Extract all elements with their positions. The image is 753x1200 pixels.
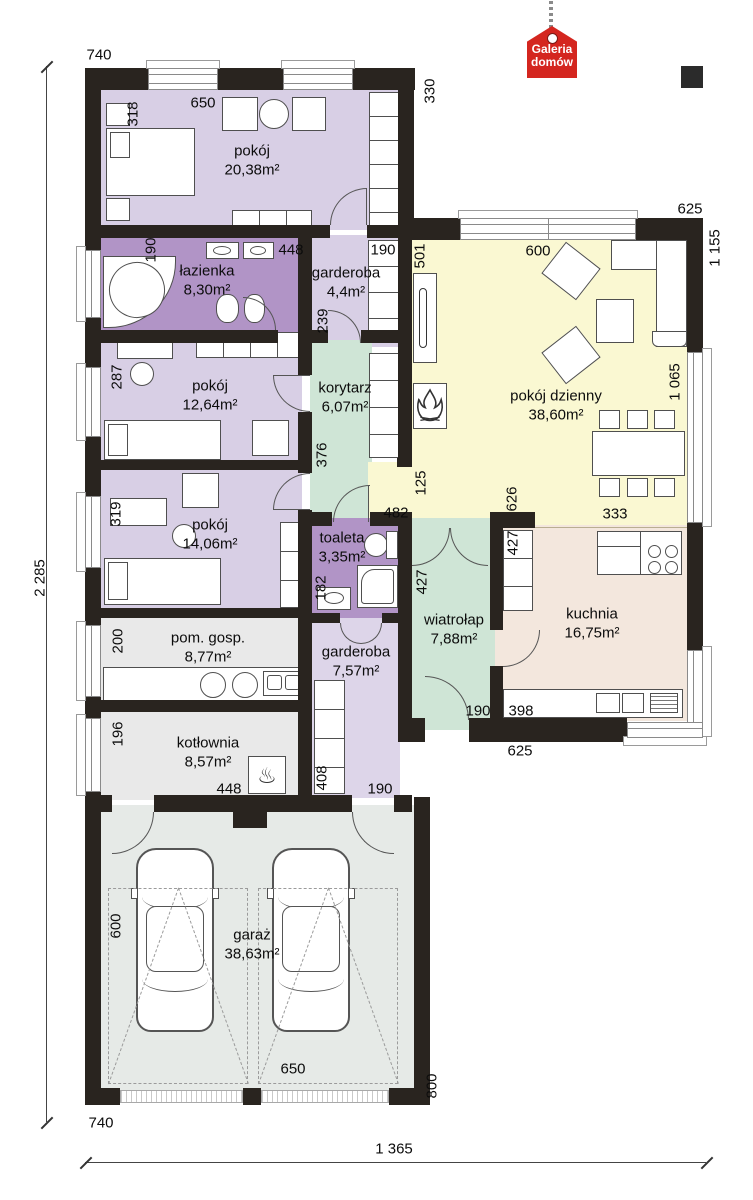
room-label-toaleta: toaleta 3,35m²: [319, 529, 366, 567]
dimension-tick: [41, 1117, 54, 1130]
wall-segment: [101, 330, 278, 343]
washbasin-bowl: [213, 246, 231, 255]
dim-label: 239: [315, 308, 332, 333]
wall-segment: [298, 412, 312, 460]
dim-label: 740: [88, 1115, 113, 1132]
dim-label: 408: [314, 765, 331, 790]
room-area: 8,57m²: [177, 753, 240, 772]
wall-segment: [367, 225, 398, 238]
room-name: pokój: [182, 516, 237, 535]
room-label-pokoj3: pokój 14,06m²: [182, 516, 237, 554]
room-label-pom-gosp: pom. gosp. 8,77m²: [171, 629, 245, 667]
room-area: 38,60m²: [510, 406, 602, 425]
wall-segment: [85, 700, 312, 712]
dim-label: 501: [412, 243, 429, 268]
dining-chair: [654, 410, 675, 429]
logo-hole-icon: [547, 33, 558, 44]
dining-chair: [654, 478, 675, 497]
chair: [130, 362, 154, 386]
window: [85, 367, 101, 437]
wall-segment: [382, 613, 398, 623]
wall-segment: [398, 68, 414, 240]
room-label-pokoj-dzienny: pokój dzienny 38,60m²: [510, 387, 602, 425]
dim-label: 1 155: [707, 229, 724, 267]
wardrobe: [369, 353, 400, 458]
toilet: [364, 533, 388, 557]
counter-divider: [597, 546, 641, 547]
dim-label: 427: [505, 530, 522, 555]
wall-segment: [398, 240, 412, 458]
dining-chair: [599, 478, 620, 497]
chimney-block: [233, 812, 267, 828]
room-area: 6,07m²: [318, 398, 371, 417]
wall-segment: [298, 618, 312, 797]
room-name: wiatrołap: [424, 611, 484, 630]
armchair: [292, 97, 326, 131]
bed-pillow: [110, 132, 130, 158]
dining-chair: [627, 410, 648, 429]
washing-machine: [200, 672, 226, 698]
plan-marker-square: [681, 66, 703, 88]
room-name: garderoba: [312, 264, 380, 283]
room-name: pokój dzienny: [510, 387, 602, 406]
room-label-garaz: garaż 38,63m²: [224, 926, 279, 964]
dim-label: 650: [280, 1061, 305, 1078]
garage-door: [120, 1090, 243, 1103]
dim-label: 398: [508, 703, 533, 720]
dim-label: 190: [370, 242, 395, 259]
dim-label: 625: [677, 201, 702, 218]
wall-segment: [154, 795, 352, 812]
door-leaf: [366, 188, 367, 225]
wall-segment: [85, 68, 101, 1105]
dim-label: 330: [422, 78, 439, 103]
wall-segment: [490, 666, 503, 718]
room-area: 38,63m²: [224, 945, 279, 964]
wall-segment: [397, 458, 412, 467]
dimension-tick: [701, 1157, 714, 1170]
wall-segment: [490, 523, 503, 630]
dim-label: 318: [125, 101, 142, 126]
dim-label: 196: [110, 721, 127, 746]
dimension-tick: [80, 1157, 93, 1170]
room-label-kuchnia: kuchnia 16,75m²: [564, 605, 619, 643]
dimension-tick: [41, 61, 54, 74]
wall-segment: [414, 797, 430, 1105]
bed-pillow: [108, 562, 128, 600]
stove-burner: [665, 561, 678, 574]
floor-plan-canvas: ♨: [0, 0, 753, 1200]
dim-label: 190: [367, 781, 392, 798]
room-area: 20,38m²: [224, 161, 279, 180]
dim-label: 625: [507, 743, 532, 760]
room-label-lazienka: łazienka 8,30m²: [179, 262, 234, 300]
kitchen-sink: [596, 693, 620, 713]
armchair: [252, 420, 289, 456]
dim-label: 319: [108, 501, 125, 526]
dining-chair: [627, 478, 648, 497]
room-label-pokoj2: pokój 12,64m²: [182, 377, 237, 415]
logo-chain: [549, 0, 553, 28]
room-area: 12,64m²: [182, 396, 237, 415]
wall-segment: [394, 795, 412, 812]
tv-icon: [419, 288, 427, 348]
room-name: garaż: [224, 926, 279, 945]
window: [148, 68, 218, 90]
dining-chair: [599, 410, 620, 429]
room-label-garderoba1: garderoba 4,4m²: [312, 264, 380, 302]
dim-label: 200: [110, 628, 127, 653]
floor-divider-line: [533, 527, 687, 528]
room-name: kotłownia: [177, 734, 240, 753]
washing-machine: [232, 672, 258, 698]
wall-segment: [312, 613, 340, 623]
nightstand: [106, 198, 130, 221]
room-label-garderoba2: garderoba 7,57m²: [322, 643, 390, 681]
room-area: 7,57m²: [322, 662, 390, 681]
boiler: ♨: [248, 756, 286, 794]
room-name: pokój: [182, 377, 237, 396]
bed-pillow: [108, 424, 128, 456]
room-area: 8,30m²: [179, 281, 234, 300]
window-sill: [702, 646, 712, 737]
window-mullion: [548, 218, 549, 240]
dim-label: 333: [602, 506, 627, 523]
dim-label: 427: [414, 569, 431, 594]
garage-door: [261, 1090, 389, 1103]
wall-segment: [101, 460, 312, 470]
dim-label: 287: [109, 364, 126, 389]
sofa-armrest: [652, 331, 687, 347]
room-area: 7,88m²: [424, 630, 484, 649]
dim-label: 2 285: [32, 559, 49, 597]
room-label-kotlownia: kotłownia 8,57m²: [177, 734, 240, 772]
dim-label: 740: [86, 47, 111, 64]
door-leaf: [273, 509, 310, 510]
dim-label: 800: [424, 1073, 441, 1098]
dim-label: 125: [413, 470, 430, 495]
brand-logo-text: domów: [527, 56, 577, 69]
room-name: pom. gosp.: [171, 629, 245, 648]
wall-segment: [101, 608, 312, 618]
stove-burner: [648, 561, 661, 574]
room-label-korytarz: korytarz 6,07m²: [318, 379, 371, 417]
dim-label: 190: [465, 703, 490, 720]
dim-label: 190: [143, 237, 160, 262]
garage-door-swing-zone: [108, 888, 248, 1084]
room-area: 3,35m²: [319, 548, 366, 567]
room-name: korytarz: [318, 379, 371, 398]
room-area: 4,4m²: [312, 283, 380, 302]
room-area: 14,06m²: [182, 535, 237, 554]
wall-segment: [243, 1088, 261, 1105]
window: [687, 352, 703, 523]
wall-segment: [101, 225, 330, 238]
counter-divider: [640, 531, 641, 575]
wall-segment: [85, 1088, 120, 1105]
wall-segment: [85, 795, 112, 812]
dim-label: 600: [108, 913, 125, 938]
dim-label: 1 365: [375, 1141, 413, 1158]
wall-segment: [298, 343, 312, 375]
stove-burner: [648, 545, 661, 558]
dimension-line-horizontal: [85, 1162, 706, 1163]
wall-segment: [298, 510, 312, 618]
wall-segment: [493, 718, 627, 742]
dim-label: 448: [216, 781, 241, 798]
dim-label: 376: [314, 442, 331, 467]
flame-icon: [414, 384, 446, 428]
dining-table: [592, 431, 685, 476]
room-area: 8,77m²: [171, 648, 245, 667]
dim-label: 650: [190, 95, 215, 112]
room-name: pokój: [224, 142, 279, 161]
window-sill: [702, 348, 712, 527]
window: [85, 625, 101, 697]
room-name: kuchnia: [564, 605, 619, 624]
fireplace: [413, 383, 447, 429]
room-name: łazienka: [179, 262, 234, 281]
dim-label: 1 065: [667, 363, 684, 401]
washbasin-bowl: [250, 246, 266, 255]
wall-segment: [361, 330, 398, 343]
wall-segment: [85, 68, 415, 90]
window: [687, 650, 703, 733]
dim-label: 182: [313, 575, 330, 600]
armchair: [182, 473, 219, 508]
coffee-table: [596, 299, 634, 343]
round-table: [259, 99, 289, 129]
window: [283, 68, 353, 90]
window: [85, 496, 101, 568]
room-name: garderoba: [322, 643, 390, 662]
dim-label: 482: [383, 505, 408, 522]
wall-segment: [469, 718, 493, 742]
garage-door-swing-zone: [258, 888, 398, 1084]
room-label-wiatrolap: wiatrołap 7,88m²: [424, 611, 484, 649]
sink-bowl: [267, 675, 282, 690]
window: [85, 718, 101, 792]
dish-rack: [650, 693, 678, 713]
toilet-tank: [386, 531, 398, 559]
stove-burner: [665, 545, 678, 558]
room-name: toaleta: [319, 529, 366, 548]
wardrobe: [369, 92, 399, 232]
window: [85, 250, 101, 318]
wall-segment: [687, 523, 703, 650]
shower-tray: [361, 569, 394, 604]
wall-segment: [687, 218, 703, 352]
room-area: 16,75m²: [564, 624, 619, 643]
door-leaf: [368, 485, 369, 522]
wall-segment: [398, 526, 412, 742]
kitchen-sink: [622, 693, 644, 713]
dim-label: 626: [504, 486, 521, 511]
window: [627, 722, 703, 738]
dim-label: 600: [525, 243, 550, 260]
door-leaf: [273, 375, 310, 376]
armchair: [222, 97, 258, 131]
wall-segment: [312, 512, 332, 526]
dim-label: 448: [278, 242, 303, 259]
room-label-pokoj1: pokój 20,38m²: [224, 142, 279, 180]
